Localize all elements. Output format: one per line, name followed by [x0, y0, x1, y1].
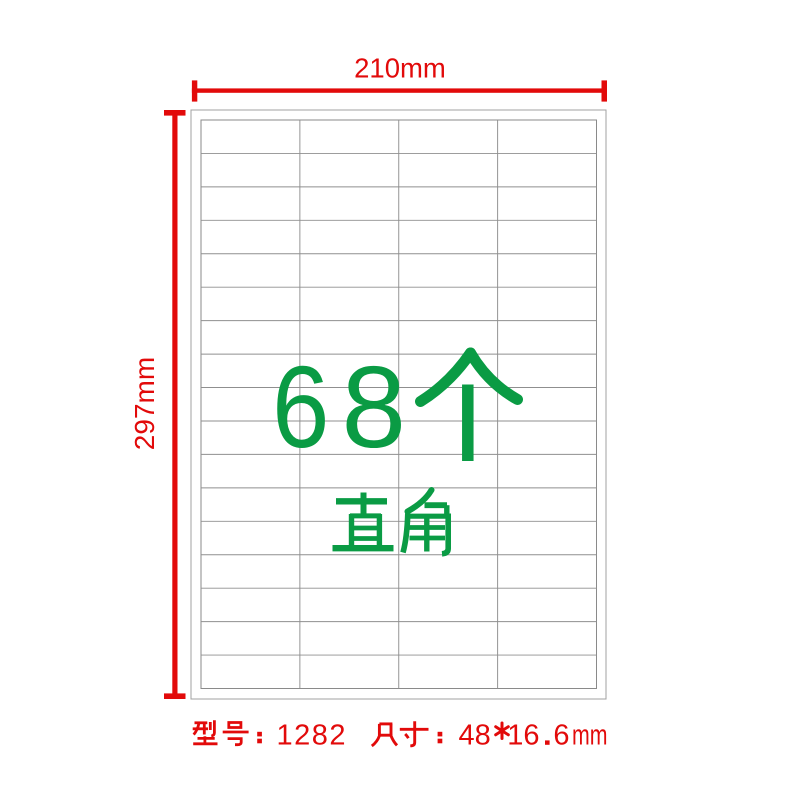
svg-text:6: 6: [272, 343, 329, 472]
svg-text:48: 48: [459, 719, 491, 751]
svg-text:8: 8: [342, 342, 407, 472]
svg-text:6: 6: [553, 719, 569, 751]
svg-text:1282: 1282: [277, 719, 348, 751]
svg-text:210mm: 210mm: [354, 53, 446, 84]
svg-text:16: 16: [507, 719, 539, 751]
svg-text:mm: mm: [572, 719, 608, 751]
svg-text:297mm: 297mm: [129, 357, 160, 450]
